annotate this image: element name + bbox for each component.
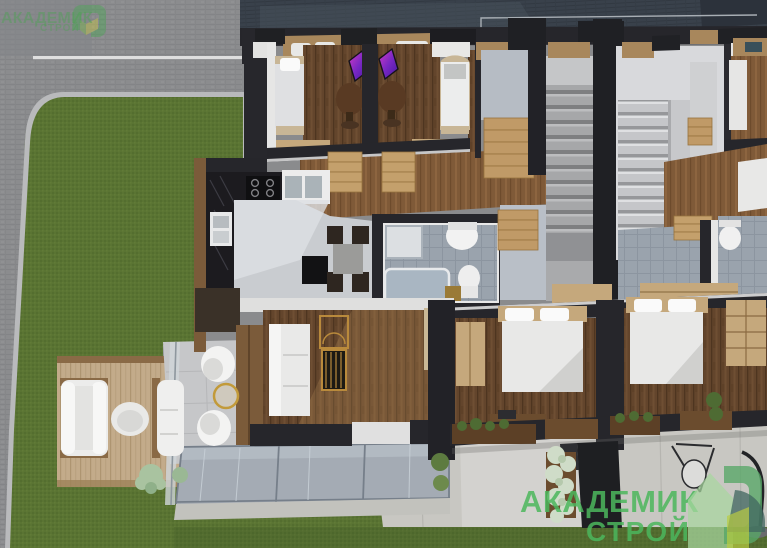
svg-text:СТРОЙ: СТРОЙ: [40, 21, 80, 34]
svg-text:СТРОЙ: СТРОЙ: [586, 515, 690, 547]
svg-text:АКАДЕМИК: АКАДЕМИК: [520, 484, 699, 519]
